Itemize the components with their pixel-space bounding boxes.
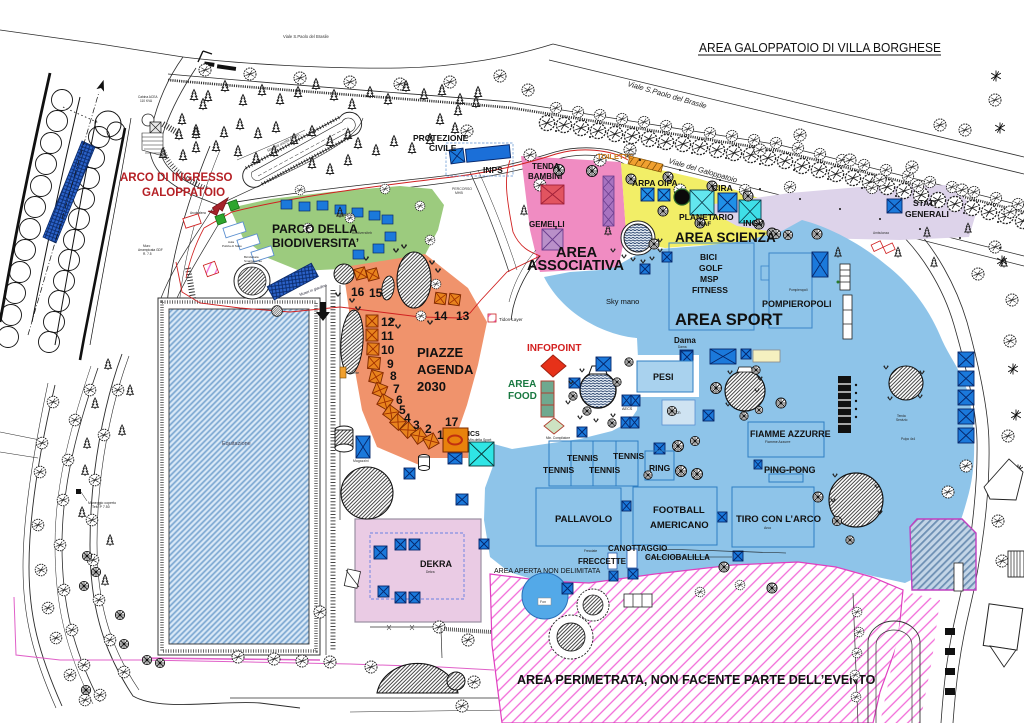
svg-text:BICI: BICI	[700, 252, 717, 262]
svg-text:ARPA OIPA: ARPA OIPA	[632, 178, 678, 188]
svg-text:GALOPPATOIO: GALOPPATOIO	[142, 187, 225, 199]
svg-text:Sky mano: Sky mano	[606, 297, 639, 306]
svg-text:Biodiversiteb: Biodiversiteb	[352, 231, 372, 235]
svg-text:4: 4	[404, 411, 411, 425]
svg-text:FOOD: FOOD	[508, 391, 537, 402]
svg-text:ICS: ICS	[468, 431, 480, 438]
svg-text:RING: RING	[649, 463, 671, 473]
svg-text:10: 10	[381, 343, 395, 357]
svg-text:17: 17	[445, 415, 459, 429]
svg-text:Ambulanza: Ambulanza	[873, 231, 889, 235]
svg-text:Fiamme Azzurre: Fiamme Azzurre	[765, 440, 791, 444]
svg-text:11: 11	[381, 329, 394, 343]
svg-text:BAMBINI: BAMBINI	[528, 172, 562, 181]
svg-text:Magazzini: Magazzini	[353, 459, 369, 463]
svg-text:AREA APERTA NON DELIMITATA: AREA APERTA NON DELIMITATA	[494, 568, 601, 575]
svg-text:1: 1	[437, 428, 444, 442]
svg-text:BIODIVERSITA’: BIODIVERSITA’	[272, 236, 359, 250]
svg-text:13: 13	[456, 309, 470, 323]
svg-text:INFOPOINT: INFOPOINT	[527, 343, 581, 354]
svg-text:FIAMME AZZURRE: FIAMME AZZURRE	[750, 429, 831, 439]
svg-text:AMERICANO: AMERICANO	[650, 520, 709, 531]
svg-text:AREA PERIMETRATA, NON FACENTE: AREA PERIMETRATA, NON FACENTE PARTE DELL…	[517, 673, 876, 687]
svg-text:Min. Compilatore: Min. Compilatore	[546, 436, 570, 440]
svg-text:PESI: PESI	[653, 372, 674, 382]
svg-text:CIVILE: CIVILE	[429, 143, 457, 153]
svg-text:TENNIS: TENNIS	[567, 453, 599, 463]
svg-text:TENDA: TENDA	[532, 162, 560, 171]
svg-text:AREA GALOPPATOIO DI VILLA BORG: AREA GALOPPATOIO DI VILLA BORGHESE	[699, 40, 941, 55]
svg-text:Toilette: Toilette	[625, 152, 636, 156]
svg-text:INPS: INPS	[483, 165, 503, 175]
svg-text:TENNIS: TENNIS	[589, 465, 621, 475]
svg-text:2: 2	[425, 422, 432, 436]
svg-text:GENERALI: GENERALI	[905, 209, 949, 219]
svg-text:FRECCETTE: FRECCETTE	[578, 557, 627, 566]
svg-text:CANOTTAGGIO: CANOTTAGGIO	[608, 544, 667, 553]
svg-text:AREA SPORT: AREA SPORT	[675, 311, 783, 329]
svg-text:Tett. P 7.50: Tett. P 7.50	[92, 505, 110, 509]
svg-text:Pompieropoli: Pompieropoli	[789, 288, 808, 292]
svg-text:12: 12	[381, 315, 395, 329]
svg-text:Arco: Arco	[764, 526, 771, 530]
svg-text:R. 7.5: R. 7.5	[143, 252, 152, 256]
svg-text:Pulpo 4x4: Pulpo 4x4	[901, 437, 915, 441]
svg-text:MSP: MSP	[700, 274, 719, 284]
svg-text:Dama: Dama	[678, 345, 687, 349]
svg-text:ASSOCIATIVA: ASSOCIATIVA	[527, 258, 624, 274]
svg-text:AGENDA: AGENDA	[417, 362, 474, 377]
svg-text:110 KVA: 110 KVA	[140, 99, 153, 103]
svg-text:Equitazione: Equitazione	[222, 441, 251, 447]
svg-text:FOOTBALL: FOOTBALL	[653, 505, 705, 516]
svg-text:Servizio: Servizio	[896, 418, 908, 422]
svg-text:STATI: STATI	[913, 198, 936, 208]
svg-text:Dekra: Dekra	[426, 570, 435, 574]
svg-text:Parodaio: Parodaio	[340, 213, 354, 217]
svg-text:16: 16	[351, 285, 365, 299]
svg-text:Min.della Sport: Min.della Sport	[468, 438, 491, 442]
svg-text:3: 3	[413, 418, 420, 432]
svg-text:2030: 2030	[417, 379, 446, 394]
svg-text:POMPIEROPOLI: POMPIEROPOLI	[762, 299, 832, 309]
svg-text:Viale S.Paolo del Brasile: Viale S.Paolo del Brasile	[283, 34, 329, 39]
svg-text:AREA: AREA	[508, 379, 536, 390]
svg-text:CALCIOBALILLA: CALCIOBALILLA	[645, 553, 710, 562]
svg-text:Frecciate: Frecciate	[584, 549, 597, 553]
svg-text:Polizia di Stato: Polizia di Stato	[222, 244, 242, 248]
svg-text:Smartamente: Smartamente	[244, 259, 262, 263]
svg-text:INGV: INGV	[743, 218, 764, 228]
svg-text:PROTEZIONE: PROTEZIONE	[413, 133, 469, 143]
svg-text:TENNIS: TENNIS	[613, 451, 645, 461]
svg-text:INAF: INAF	[697, 222, 711, 228]
svg-text:15: 15	[369, 286, 383, 300]
svg-text:Arcobaleno: Arcobaleno	[190, 211, 206, 215]
svg-text:AECS: AECS	[622, 407, 633, 411]
svg-text:8: 8	[390, 369, 397, 383]
svg-text:MHB: MHB	[455, 191, 463, 195]
svg-text:CIRA: CIRA	[712, 183, 733, 193]
svg-text:PALLAVOLO: PALLAVOLO	[555, 514, 612, 525]
svg-text:Dama: Dama	[674, 336, 696, 345]
svg-text:DEKRA: DEKRA	[420, 559, 453, 569]
svg-text:FITNESS: FITNESS	[692, 285, 728, 295]
svg-text:14: 14	[434, 309, 448, 323]
svg-text:PIAZZE: PIAZZE	[417, 345, 464, 360]
svg-text:TENNIS: TENNIS	[543, 465, 575, 475]
svg-text:PLANETARIO: PLANETARIO	[679, 212, 734, 222]
svg-text:AREA SCIENZA: AREA SCIENZA	[675, 230, 776, 245]
svg-text:PARCO DELLA: PARCO DELLA	[272, 222, 358, 236]
svg-text:GEMELLI: GEMELLI	[529, 220, 565, 229]
svg-text:GOLF: GOLF	[699, 263, 723, 273]
svg-text:Fon: Fon	[540, 600, 546, 604]
svg-text:TIRO CON L’ARCO: TIRO CON L’ARCO	[736, 514, 821, 525]
svg-text:Toilette: Toilette	[348, 371, 359, 375]
svg-text:ARCO DI INGRESSO: ARCO DI INGRESSO	[120, 172, 233, 184]
